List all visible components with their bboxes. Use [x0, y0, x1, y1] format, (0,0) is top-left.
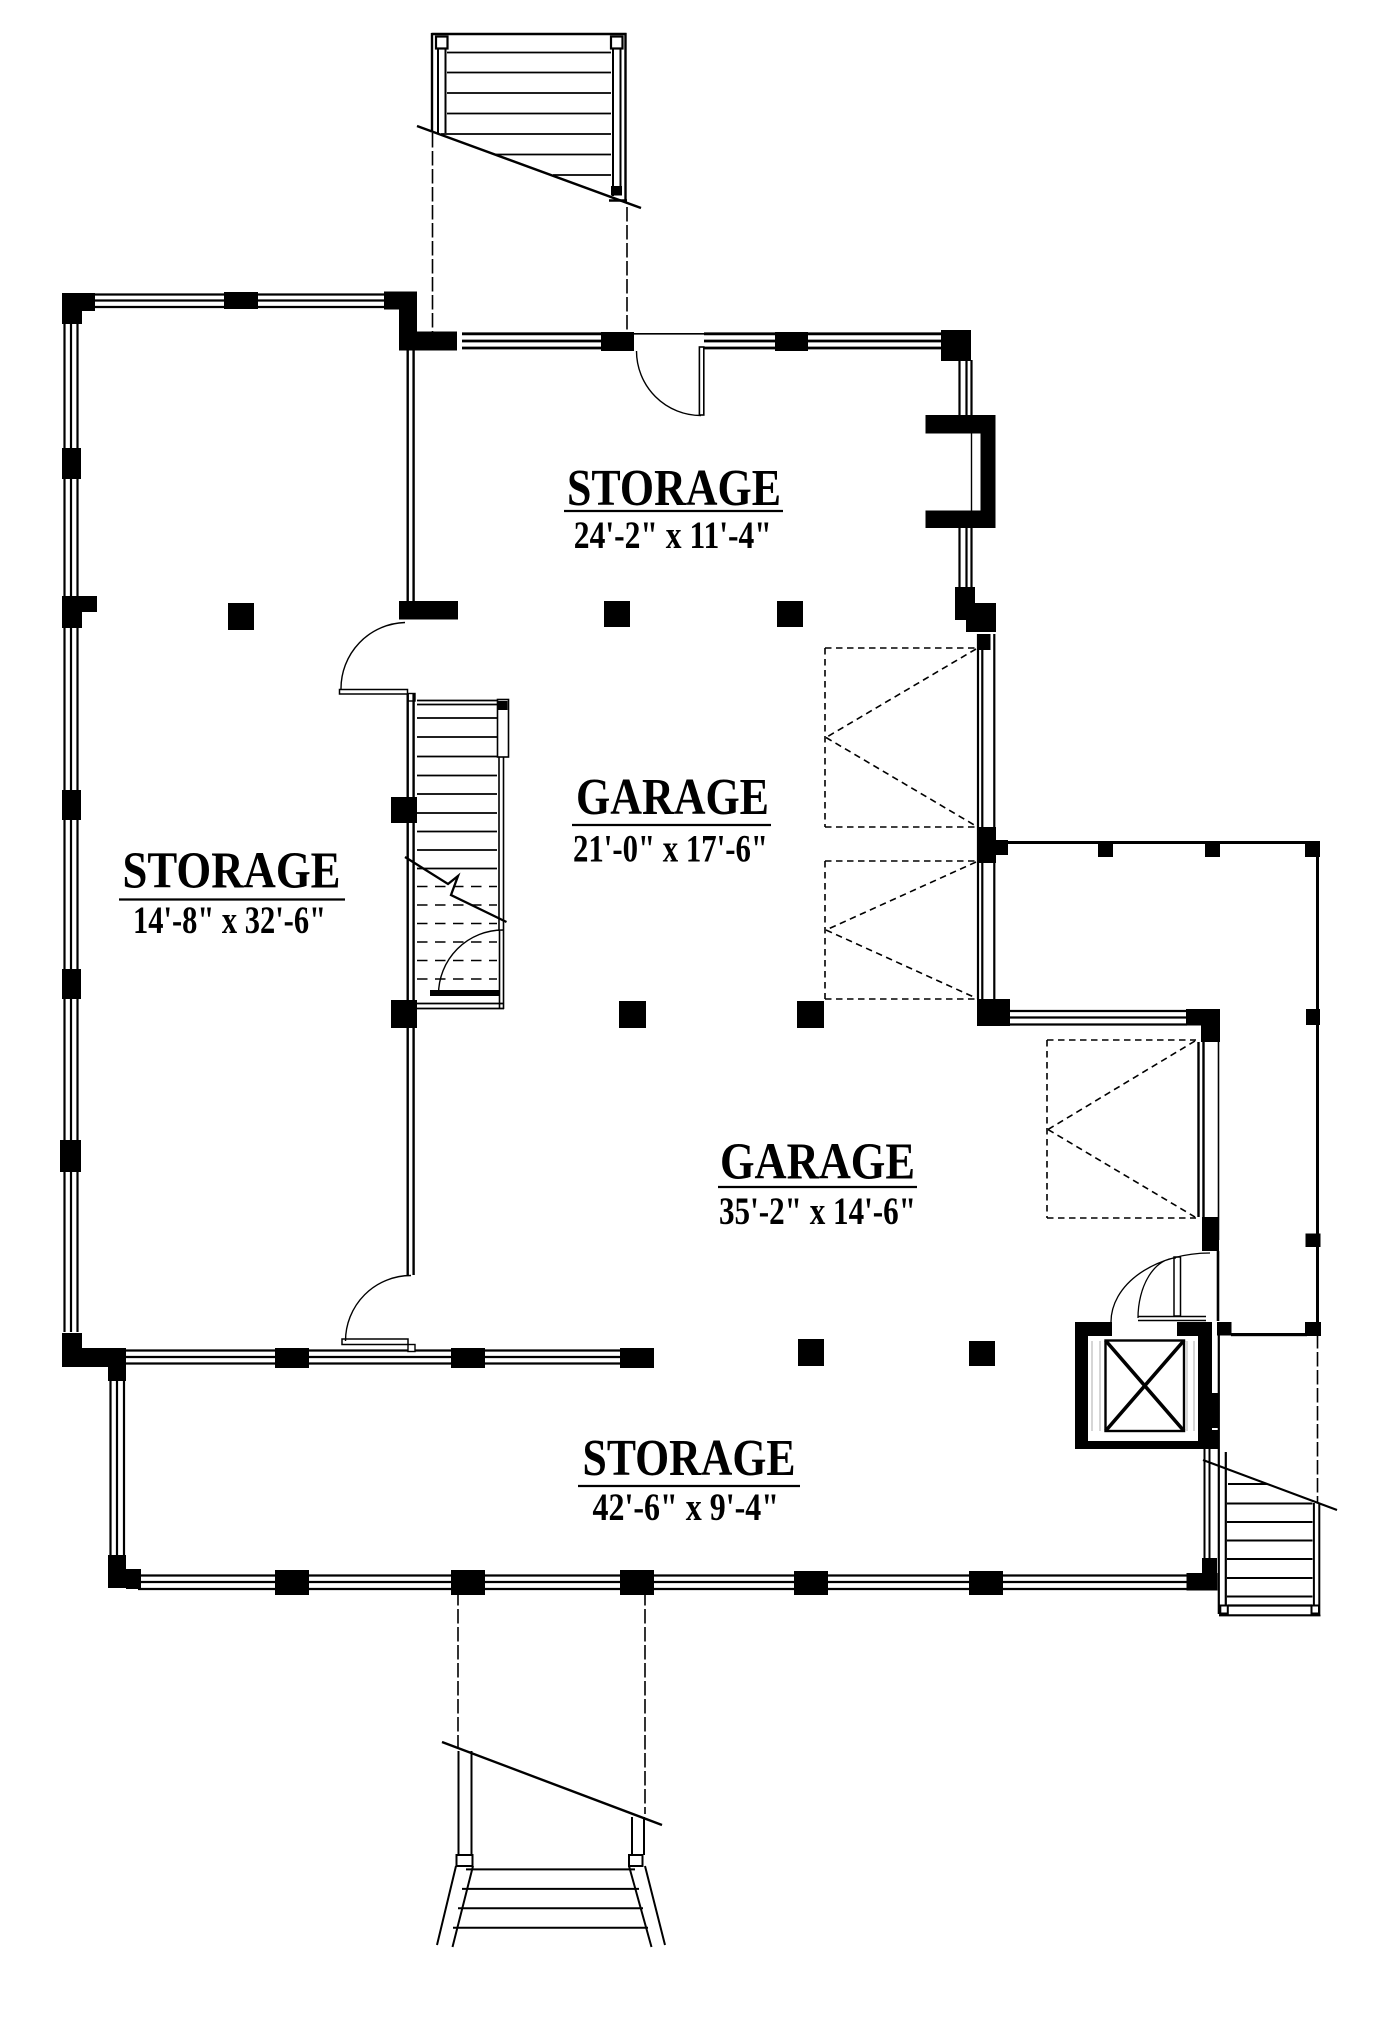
- svg-text:STORAGE: STORAGE: [583, 1430, 796, 1487]
- svg-text:14'-8" x 32'-6": 14'-8" x 32'-6": [133, 898, 326, 942]
- svg-text:21'-0" x 17'-6": 21'-0" x 17'-6": [573, 827, 768, 871]
- svg-text:STORAGE: STORAGE: [123, 843, 341, 900]
- svg-text:STORAGE: STORAGE: [567, 460, 781, 517]
- svg-text:42'-6" x 9'-4": 42'-6" x 9'-4": [593, 1485, 780, 1529]
- svg-text:24'-2" x 11'-4": 24'-2" x 11'-4": [574, 513, 772, 557]
- svg-text:GARAGE: GARAGE: [576, 769, 769, 826]
- svg-text:35'-2" x 14'-6": 35'-2" x 14'-6": [719, 1189, 916, 1233]
- svg-text:GARAGE: GARAGE: [720, 1134, 915, 1191]
